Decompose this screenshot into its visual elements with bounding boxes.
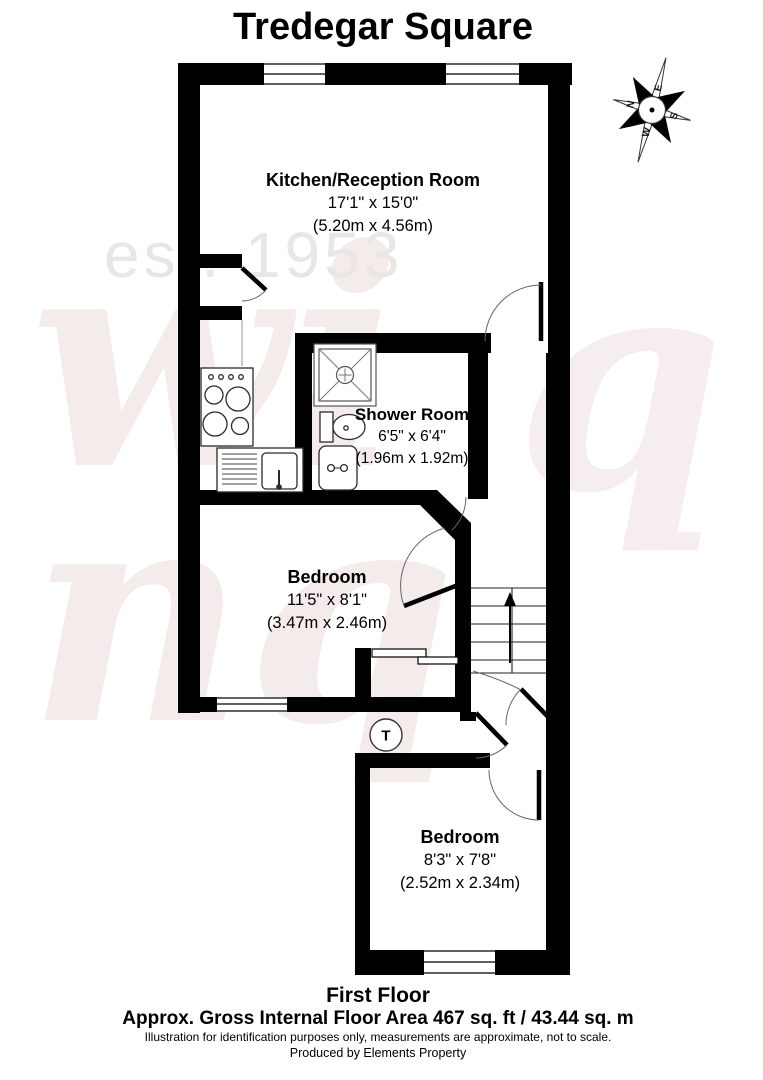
door-landing	[473, 671, 556, 725]
room-size-metric: (2.52m x 2.34m)	[400, 872, 520, 895]
shower-tray-icon	[314, 344, 376, 406]
tank-symbol: T	[370, 719, 402, 751]
room-name: Shower Room	[355, 404, 469, 426]
compass-n: N	[625, 100, 637, 110]
page-title: Tredegar Square	[233, 6, 533, 49]
room-name: Kitchen/Reception Room	[266, 168, 480, 192]
window	[264, 63, 325, 85]
room-label-bedroom-1: Bedroom 11'5" x 8'1" (3.47m x 2.46m)	[267, 565, 387, 635]
tank-letter: T	[381, 728, 390, 745]
compass-s: S	[669, 111, 681, 121]
floor-area: Approx. Gross Internal Floor Area 467 sq…	[122, 1008, 633, 1030]
stove-icon	[201, 368, 253, 446]
room-size-metric: (1.96m x 1.92m)	[355, 448, 469, 470]
staircase	[471, 588, 546, 673]
washbasin-icon	[319, 446, 357, 490]
room-size-metric: (3.47m x 2.46m)	[267, 612, 387, 635]
room-name: Bedroom	[267, 565, 387, 589]
door-bedroom-2	[489, 770, 539, 820]
disclaimer: Illustration for identification purposes…	[145, 1030, 612, 1044]
door-tank-cupboard	[476, 713, 507, 758]
room-size-imperial: 17'1" x 15'0"	[266, 192, 480, 215]
room-label-bedroom-2: Bedroom 8'3" x 7'8" (2.52m x 2.34m)	[400, 825, 520, 895]
room-label-shower: Shower Room 6'5" x 6'4" (1.96m x 1.92m)	[355, 404, 469, 470]
window	[217, 697, 287, 712]
floorplan-page: wi nq q est. 1953	[0, 0, 763, 1080]
kitchen-fixtures	[201, 320, 303, 492]
room-label-kitchen: Kitchen/Reception Room 17'1" x 15'0" (5.…	[266, 168, 480, 238]
room-size-imperial: 11'5" x 8'1"	[267, 589, 387, 612]
room-name: Bedroom	[400, 825, 520, 849]
door-kitchen	[485, 282, 541, 341]
window	[424, 950, 495, 975]
room-size-imperial: 8'3" x 7'8"	[400, 849, 520, 872]
compass-w: W	[640, 126, 653, 139]
room-size-imperial: 6'5" x 6'4"	[355, 426, 469, 448]
room-size-metric: (5.20m x 4.56m)	[266, 215, 480, 238]
floor-plan: T N E S W	[0, 0, 763, 1080]
credit: Produced by Elements Property	[290, 1046, 466, 1060]
sliding-closet	[372, 649, 458, 664]
window	[446, 63, 519, 85]
stairs-up-arrow-icon	[504, 592, 516, 663]
compass-icon: N E S W	[599, 47, 704, 172]
door-kitchen-recess	[242, 268, 266, 301]
door-bedroom-1	[401, 528, 458, 606]
floor-label: First Floor	[326, 984, 430, 1008]
sink-icon	[217, 448, 303, 492]
